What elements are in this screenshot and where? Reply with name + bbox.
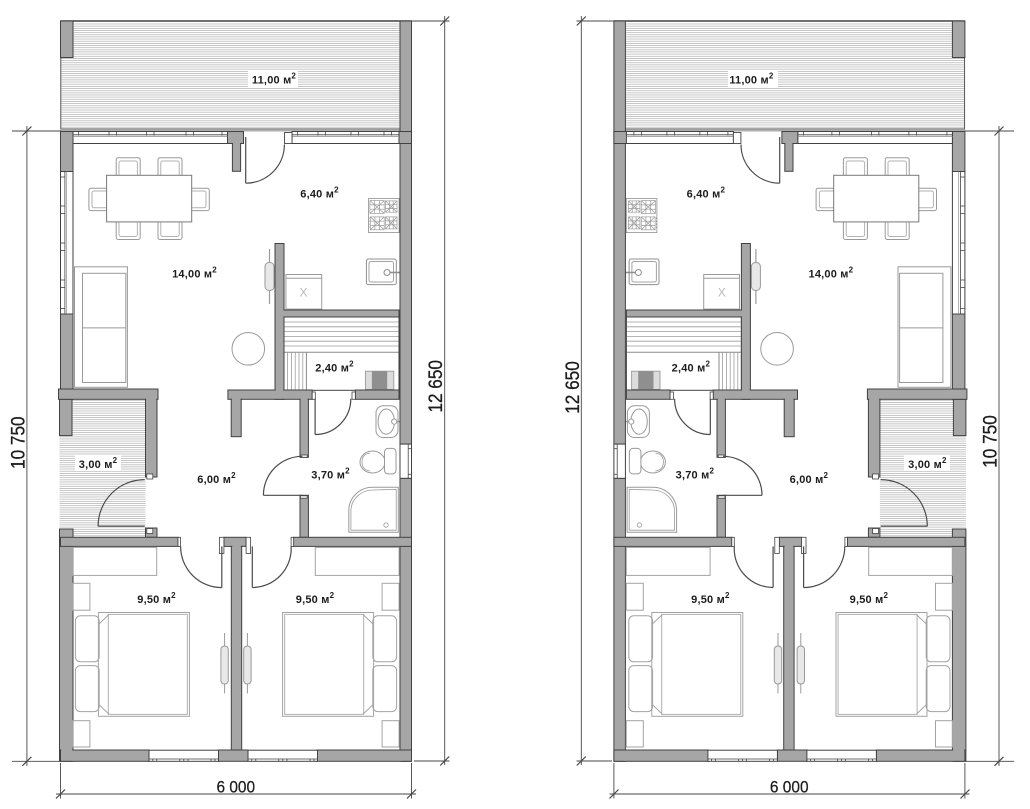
svg-text:10 750: 10 750 <box>7 416 29 469</box>
svg-text:10 750: 10 750 <box>980 415 1002 468</box>
svg-text:6,40 м2: 6,40 м2 <box>687 186 726 201</box>
svg-text:12 650: 12 650 <box>562 361 584 414</box>
svg-text:6,00 м2: 6,00 м2 <box>790 471 829 486</box>
svg-text:11,00 м2: 11,00 м2 <box>252 72 297 87</box>
svg-text:12 650: 12 650 <box>425 360 447 413</box>
svg-text:6,40 м2: 6,40 м2 <box>300 186 339 201</box>
svg-text:6 000: 6 000 <box>770 777 809 796</box>
svg-text:6 000: 6 000 <box>216 777 255 796</box>
svg-text:11,00 м2: 11,00 м2 <box>729 72 774 87</box>
svg-text:9,50 м2: 9,50 м2 <box>137 591 176 606</box>
svg-text:3,70 м2: 3,70 м2 <box>676 467 715 482</box>
svg-text:9,50 м2: 9,50 м2 <box>850 591 889 606</box>
svg-text:14,00 м2: 14,00 м2 <box>809 266 854 281</box>
svg-text:9,50 м2: 9,50 м2 <box>691 591 730 606</box>
svg-text:2,40 м2: 2,40 м2 <box>315 360 354 375</box>
svg-text:9,50 м2: 9,50 м2 <box>296 591 335 606</box>
svg-text:2,40 м2: 2,40 м2 <box>672 360 711 375</box>
svg-text:3,00 м2: 3,00 м2 <box>908 456 947 471</box>
svg-text:3,00 м2: 3,00 м2 <box>79 456 118 471</box>
svg-text:6,00 м2: 6,00 м2 <box>197 471 236 486</box>
svg-text:3,70 м2: 3,70 м2 <box>311 467 350 482</box>
svg-text:14,00 м2: 14,00 м2 <box>172 266 217 281</box>
